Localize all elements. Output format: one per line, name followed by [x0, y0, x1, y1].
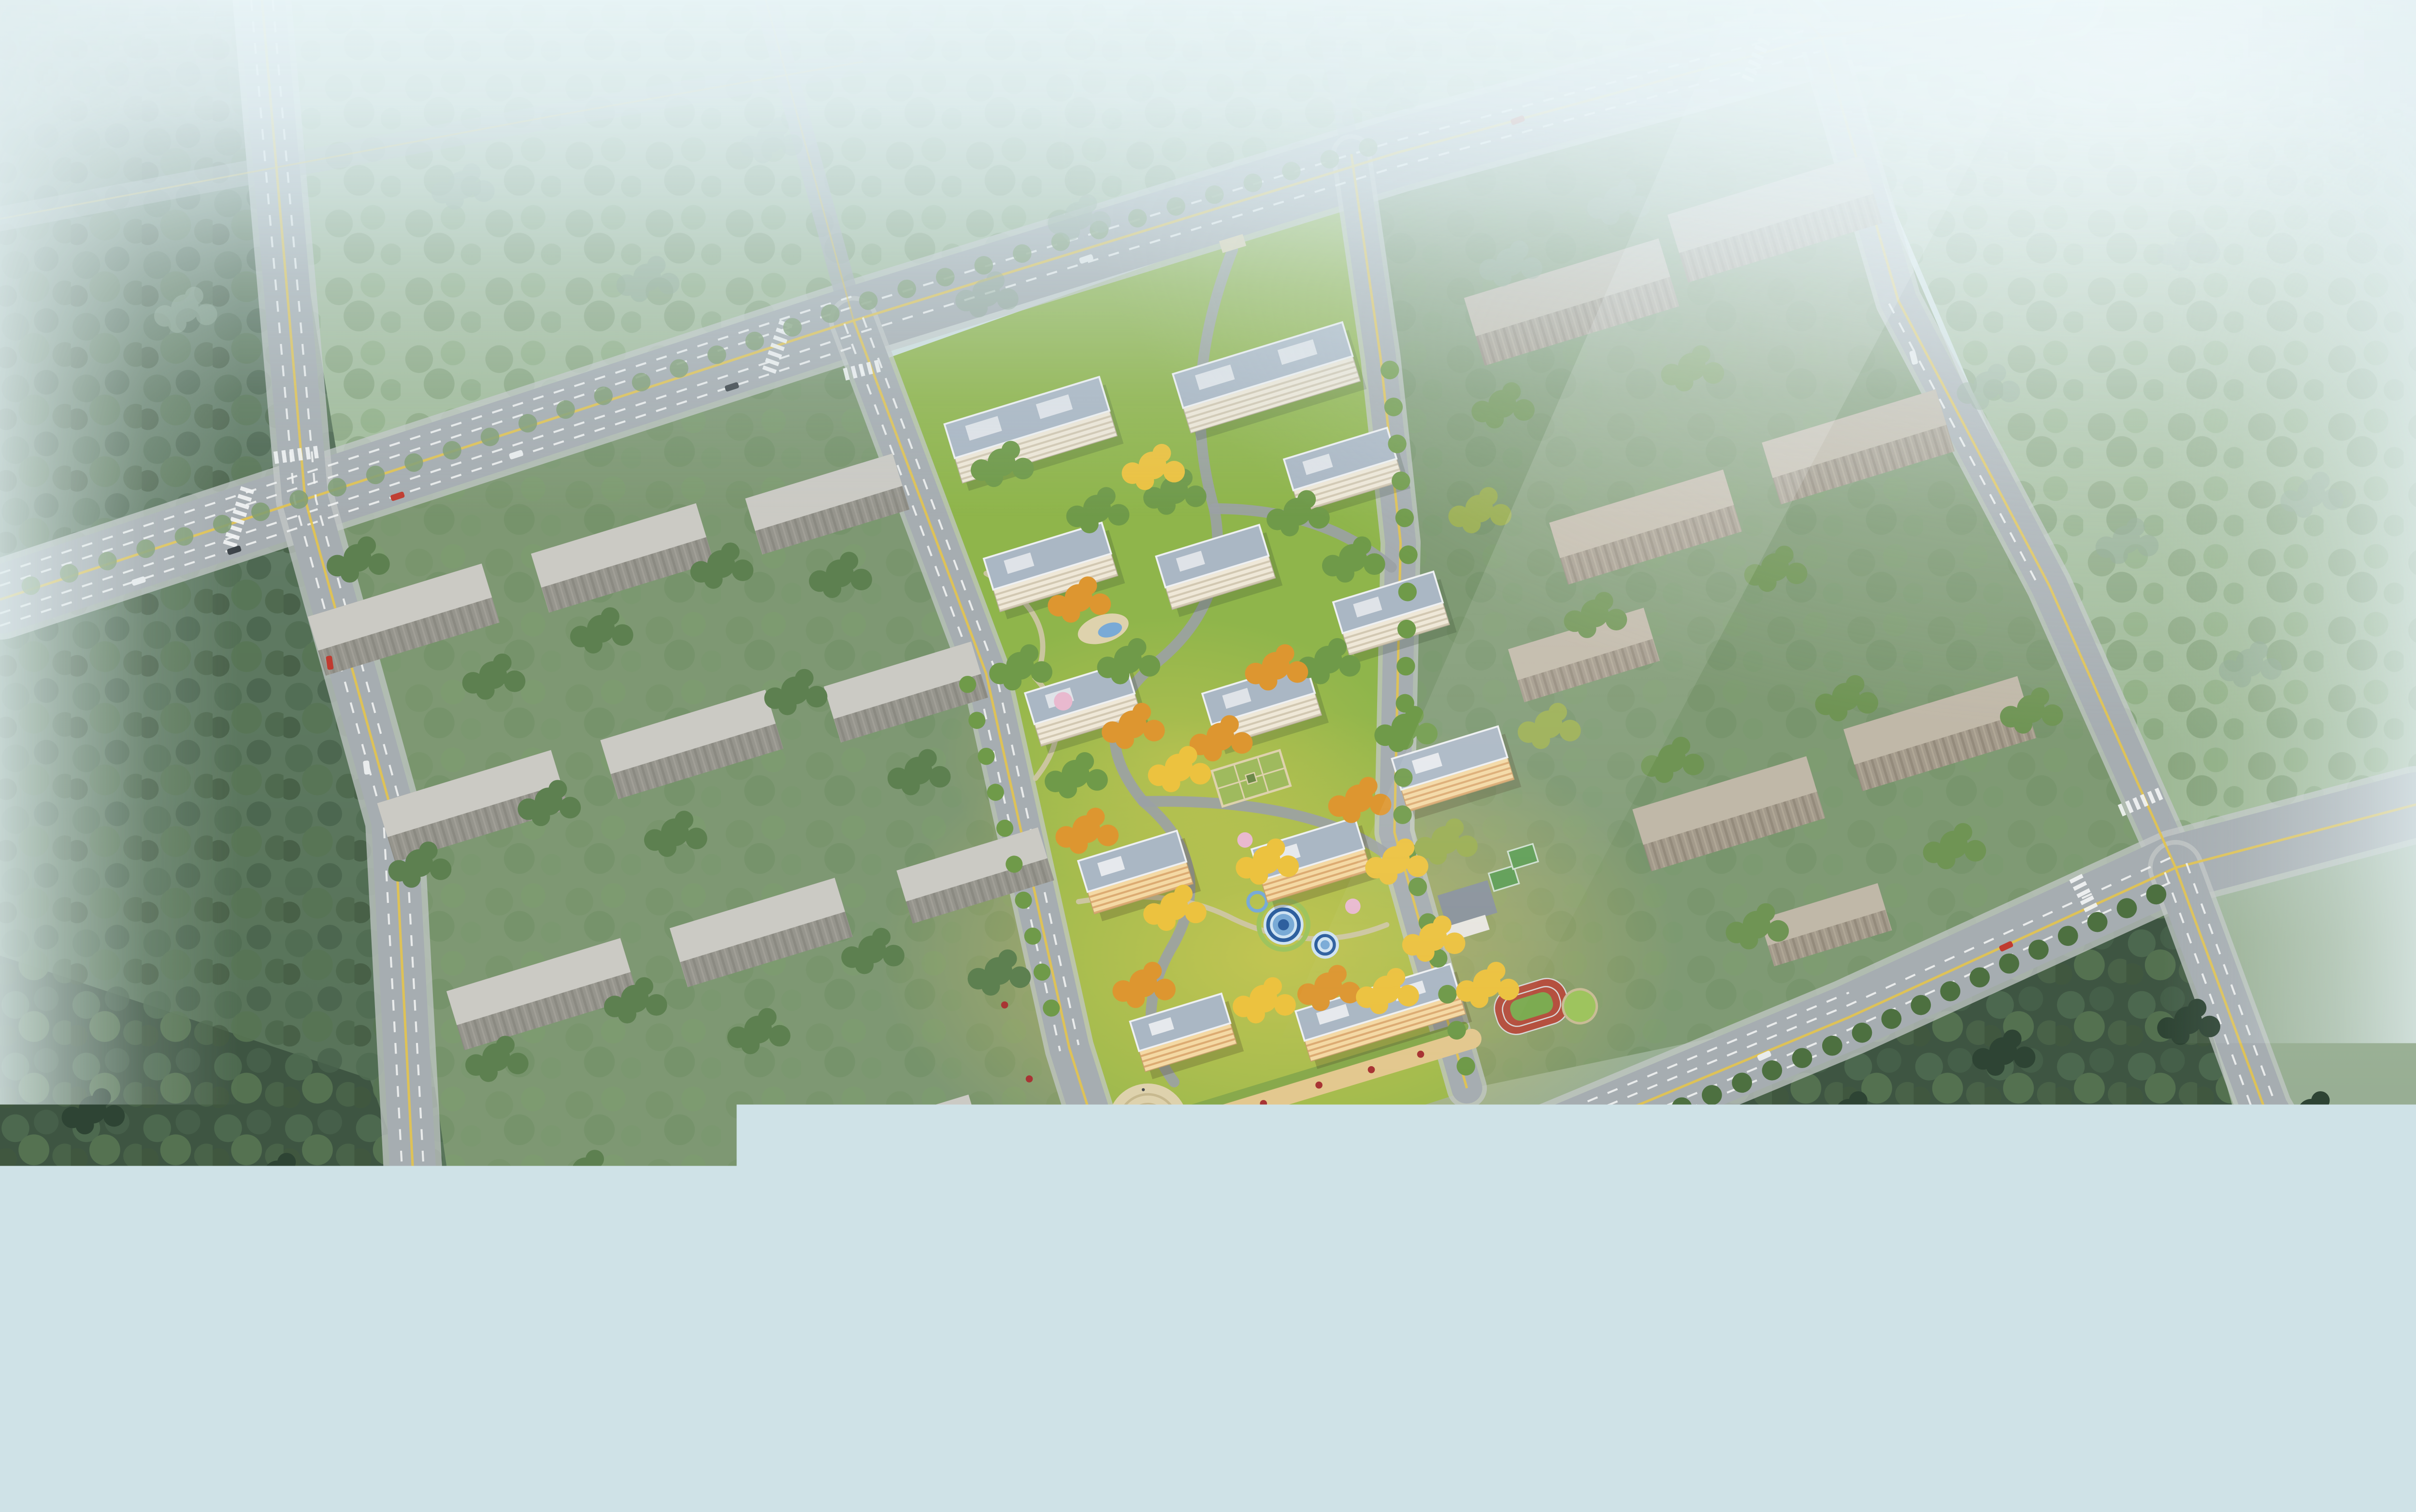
aerial-scene	[0, 0, 2416, 1512]
fog-overlays	[0, 0, 2416, 1512]
aerial-rendering	[0, 0, 2416, 1512]
fog-bottom	[0, 1204, 2416, 1512]
